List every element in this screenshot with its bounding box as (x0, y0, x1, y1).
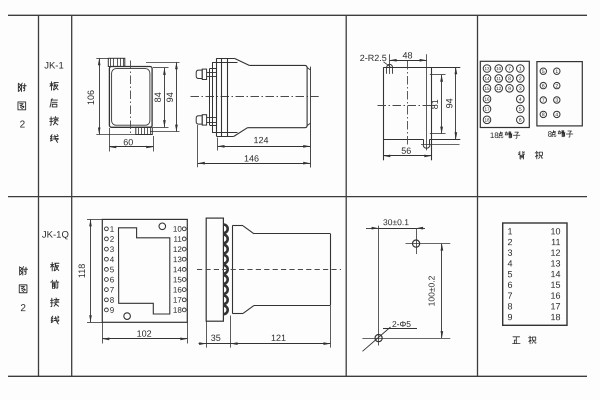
svg-text:15: 15 (173, 275, 182, 284)
svg-text:11: 11 (496, 76, 501, 81)
svg-text:2: 2 (519, 76, 522, 82)
svg-text:16: 16 (550, 291, 560, 301)
svg-text:146: 146 (244, 153, 259, 163)
svg-text:11: 11 (173, 235, 182, 244)
svg-text:6: 6 (519, 118, 522, 124)
svg-text:5: 5 (110, 265, 115, 274)
svg-text:13: 13 (550, 258, 560, 268)
svg-text:12: 12 (173, 245, 182, 254)
svg-text:7: 7 (542, 98, 545, 104)
svg-text:11: 11 (551, 237, 560, 247)
svg-text:12: 12 (550, 248, 560, 258)
svg-text:3: 3 (519, 86, 522, 92)
svg-text:4: 4 (519, 97, 522, 103)
svg-text:1: 1 (519, 66, 522, 72)
svg-text:4: 4 (507, 259, 512, 269)
svg-text:94: 94 (165, 92, 175, 102)
svg-text:48: 48 (402, 50, 412, 60)
svg-text:2: 2 (20, 303, 26, 314)
svg-text:10: 10 (496, 66, 502, 71)
svg-text:JK-1: JK-1 (44, 60, 64, 71)
svg-text:7: 7 (110, 286, 115, 295)
svg-text:10: 10 (173, 225, 182, 234)
svg-text:1: 1 (110, 225, 115, 234)
svg-text:60: 60 (123, 137, 133, 147)
svg-text:15: 15 (550, 280, 560, 290)
svg-text:2: 2 (555, 83, 558, 89)
svg-text:9: 9 (508, 86, 511, 92)
svg-text:2: 2 (507, 237, 512, 247)
svg-text:6: 6 (507, 280, 512, 290)
svg-text:2: 2 (20, 119, 26, 130)
svg-text:16: 16 (484, 97, 490, 102)
svg-text:3: 3 (507, 248, 512, 258)
svg-text:18: 18 (490, 131, 499, 140)
svg-text:124: 124 (253, 135, 268, 145)
svg-text:2-Φ5: 2-Φ5 (392, 319, 411, 329)
svg-text:12: 12 (496, 86, 502, 91)
svg-text:JK-1Q: JK-1Q (42, 230, 69, 241)
svg-text:13: 13 (173, 255, 182, 264)
svg-text:118: 118 (77, 264, 87, 278)
svg-text:8: 8 (508, 76, 511, 82)
svg-text:81: 81 (430, 99, 440, 109)
svg-text:4: 4 (110, 255, 115, 264)
svg-text:17: 17 (484, 107, 490, 112)
svg-text:18: 18 (484, 117, 490, 122)
svg-text:5: 5 (507, 269, 512, 279)
svg-text:15: 15 (484, 86, 490, 91)
svg-text:2-R2.5: 2-R2.5 (360, 53, 387, 63)
svg-text:56: 56 (401, 146, 411, 156)
svg-text:5: 5 (542, 69, 545, 75)
svg-text:18: 18 (173, 306, 182, 315)
svg-text:35: 35 (211, 333, 221, 343)
svg-text:121: 121 (271, 333, 286, 343)
svg-text:8: 8 (548, 130, 553, 139)
svg-text:8: 8 (507, 301, 512, 311)
svg-text:14: 14 (173, 265, 182, 274)
svg-text:30±0.1: 30±0.1 (383, 217, 409, 227)
svg-text:1: 1 (507, 226, 512, 236)
svg-text:3: 3 (555, 98, 558, 104)
svg-text:106: 106 (86, 90, 96, 105)
svg-text:9: 9 (507, 312, 512, 322)
svg-text:84: 84 (153, 92, 163, 102)
svg-text:8: 8 (542, 112, 545, 118)
svg-text:100±0.2: 100±0.2 (427, 275, 437, 306)
svg-text:8: 8 (110, 296, 115, 305)
svg-text:3: 3 (110, 245, 115, 254)
svg-text:5: 5 (519, 107, 522, 113)
svg-text:14: 14 (484, 76, 490, 81)
svg-text:16: 16 (173, 285, 182, 294)
svg-text:1: 1 (555, 69, 558, 75)
svg-text:6: 6 (110, 275, 115, 284)
svg-text:6: 6 (542, 83, 545, 89)
svg-text:102: 102 (137, 329, 152, 339)
svg-text:94: 94 (445, 98, 455, 108)
svg-text:13: 13 (484, 66, 490, 71)
svg-text:7: 7 (507, 291, 512, 301)
svg-text:17: 17 (173, 296, 182, 305)
svg-text:2: 2 (110, 235, 115, 244)
svg-text:4: 4 (555, 112, 558, 118)
svg-text:14: 14 (550, 269, 560, 279)
svg-text:18: 18 (550, 312, 560, 322)
svg-text:17: 17 (550, 301, 560, 311)
svg-text:10: 10 (550, 226, 560, 236)
svg-text:9: 9 (110, 306, 115, 315)
svg-text:7: 7 (508, 66, 511, 72)
